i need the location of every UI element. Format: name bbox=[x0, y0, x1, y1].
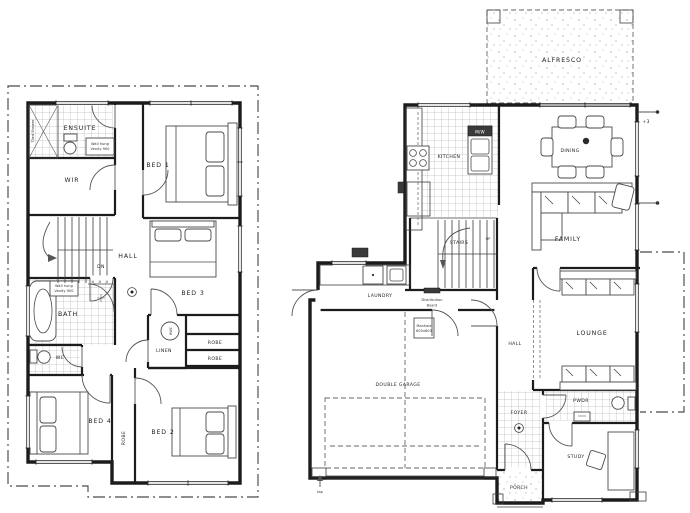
leader-dot-1 bbox=[656, 110, 660, 114]
floor-plans-drawing: Tiled Shower Wall hung Vanity 900 Wall h… bbox=[0, 0, 690, 513]
laundry-label: LAUNDRY bbox=[368, 293, 393, 299]
pwdr-toilet bbox=[612, 397, 624, 409]
laundry-area: LAUNDRY bbox=[320, 248, 410, 299]
bed4-furniture bbox=[30, 392, 88, 454]
leader-dot-2 bbox=[656, 201, 660, 205]
bed2-label: BED 2 bbox=[151, 429, 174, 436]
ensuite-toilet-tank bbox=[64, 134, 77, 141]
manhole-label-1: Manhole bbox=[416, 324, 431, 328]
porch-label: PORCH bbox=[510, 485, 528, 491]
upper-floor-plan: Tiled Shower Wall hung Vanity 900 Wall h… bbox=[8, 86, 258, 497]
dn-label: DN bbox=[97, 264, 105, 270]
shower-note: Tiled Shower bbox=[31, 119, 35, 144]
wc-toilet bbox=[38, 351, 50, 363]
ground-hall-label: HALL bbox=[508, 341, 521, 347]
meter-box bbox=[398, 182, 404, 193]
robe-bed2-label: ROBE bbox=[121, 431, 127, 445]
foyer-label: FOYER bbox=[511, 410, 528, 416]
family-label: FAMILY bbox=[555, 236, 581, 243]
bed3-label: BED 3 bbox=[181, 290, 204, 297]
dining-table bbox=[552, 127, 612, 167]
manhole bbox=[414, 318, 434, 338]
table-plant bbox=[583, 138, 589, 144]
floor-plan-document: Tiled Shower Wall hung Vanity 900 Wall h… bbox=[0, 0, 690, 513]
annotation-markers: +3 bbox=[639, 110, 659, 205]
linen-cupboard: HWC bbox=[161, 322, 179, 340]
up-label: UP bbox=[486, 237, 491, 241]
manhole-label-2: 600x600 bbox=[416, 329, 432, 333]
pwdr-toilet-tank bbox=[628, 397, 635, 410]
family-furniture bbox=[532, 183, 635, 250]
alfresco-area: ALFRESCO bbox=[487, 10, 633, 103]
study-chair bbox=[586, 450, 606, 470]
ground-floor-plan: ALFRESCO bbox=[292, 10, 684, 507]
stairs-label: STAIRS bbox=[450, 240, 468, 246]
garage-area: DOUBLE GARAGE tap bbox=[312, 312, 496, 494]
wc-toilet-tank bbox=[30, 350, 37, 363]
tap-label: tap bbox=[317, 490, 323, 494]
lounge-label: LOUNGE bbox=[576, 330, 607, 337]
alfresco-label: ALFRESCO bbox=[542, 57, 582, 64]
bed2-furniture bbox=[172, 406, 236, 458]
upper-hall-label: HALL bbox=[118, 253, 137, 260]
level-marker-label: +3 bbox=[642, 119, 650, 125]
upper-stairs: DN bbox=[43, 217, 113, 283]
bed3-furniture bbox=[150, 221, 216, 277]
robe1-label: ROBE bbox=[208, 340, 222, 346]
ensuite-toilet bbox=[64, 142, 76, 154]
ensuite-vanity-note-2: Vanity 900 bbox=[90, 147, 109, 151]
bath-vanity-note-2: Vanity 900 bbox=[54, 289, 73, 293]
stair-direction-arrow bbox=[43, 222, 50, 258]
kitchen-label: KITCHEN bbox=[438, 154, 461, 160]
study-label: STUDY bbox=[567, 454, 584, 460]
linen-label: LINEN bbox=[156, 348, 172, 354]
pwdr-label: PWDR bbox=[573, 398, 589, 404]
robe2-label: ROBE bbox=[208, 356, 222, 362]
study-area: STUDY bbox=[567, 432, 646, 501]
ensuite-vanity-note-1: Wall hung bbox=[91, 142, 109, 146]
pwdr-vanity bbox=[574, 412, 590, 421]
bath-vanity-note-1: Wall hung bbox=[55, 284, 73, 288]
window-tag bbox=[352, 248, 368, 257]
distribution-board-label-1: Distribution bbox=[422, 298, 443, 302]
hwc-label: HWC bbox=[169, 326, 173, 335]
garage-label: DOUBLE GARAGE bbox=[375, 382, 420, 388]
dining-furniture: DINING bbox=[541, 116, 623, 178]
bed1-furniture bbox=[166, 123, 237, 205]
bath-label: BATH bbox=[58, 311, 78, 318]
bed4-label: BED 4 bbox=[88, 418, 111, 425]
cooktop bbox=[407, 146, 429, 170]
bed1-label: BED 1 bbox=[146, 162, 169, 169]
lounge-eave-outline bbox=[640, 252, 684, 412]
wc-label: WC bbox=[56, 355, 65, 361]
study-desk bbox=[608, 432, 634, 490]
wir-label: WIR bbox=[65, 177, 80, 184]
ground-stairs: STAIRS UP Distribution Board Manhole 600… bbox=[414, 220, 497, 338]
microwave-label: M/W bbox=[475, 130, 485, 135]
distribution-board bbox=[424, 288, 440, 293]
ensuite-label: ENSUITE bbox=[64, 125, 97, 132]
smoke-alarm-icon bbox=[128, 288, 137, 297]
dining-label: DINING bbox=[560, 148, 579, 154]
distribution-board-label-2: Board bbox=[427, 304, 437, 308]
